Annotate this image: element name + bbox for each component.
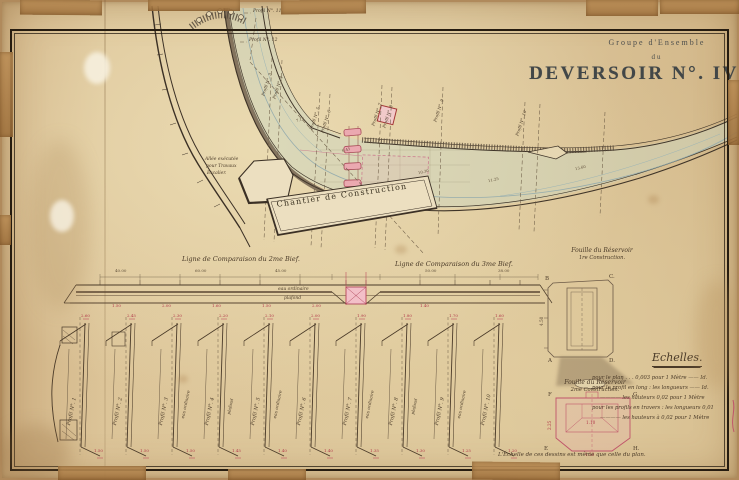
tape-patch — [586, 0, 658, 16]
profil-top-dim: 2.45 — [127, 314, 136, 319]
water-level-label: eau ordinaire — [278, 287, 309, 292]
title-line-2: du — [572, 53, 739, 61]
chainage-dim: 60.00 — [195, 269, 206, 274]
scale-line-2: pour le profil en long : les longueurs —… — [592, 384, 738, 393]
chainage-dim: 38.00 — [498, 269, 509, 274]
scale-line-4: pour les profils en travers : les longue… — [592, 404, 738, 413]
tape-patch — [0, 52, 13, 137]
depth-dim: 1.50 — [112, 304, 121, 309]
tape-patch — [660, 0, 739, 14]
profil-top-dim: 2.20 — [219, 314, 228, 319]
tape-patch — [20, 0, 102, 15]
depth-dim: 2.00 — [312, 304, 321, 309]
chainage-dim: 50.00 — [425, 269, 436, 274]
title-line-1: Groupe d'Ensemble — [572, 38, 739, 47]
depth-dim: 1.50 — [262, 304, 271, 309]
profil-bottom-dim: 1.50 — [186, 449, 195, 454]
profil-top-dim: 1.70 — [449, 314, 458, 319]
fouille-reservoir-1 — [544, 280, 634, 389]
corner-letter-A: A — [548, 358, 552, 364]
chainage-dim: 40.00 — [115, 269, 126, 274]
fouille2-inner-dim: 1.10 — [586, 421, 595, 426]
fouille1-title: Fouille du Réservoir — [550, 248, 654, 255]
corner-letter-D: D. — [609, 358, 615, 364]
bottom-scale-note: L'Échelle de ces dessins est même que ce… — [498, 452, 646, 458]
long-profile-left-title: Ligne de Comparaison du 2me Bief. — [182, 256, 300, 263]
profil-bottom-dim: 1.30 — [416, 449, 425, 454]
tape-patch — [148, 0, 240, 11]
marker-profil-12: Profil N°. 12 — [249, 38, 278, 43]
allee-note-line1: Allée exécutée — [205, 157, 238, 162]
tape-patch — [0, 215, 11, 245]
profil-top-dim: 1.80 — [403, 314, 412, 319]
profil-bottom-dim: 1.35 — [370, 449, 379, 454]
profil-top-dim: 1.90 — [357, 314, 366, 319]
profil-bottom-dim: 1.40 — [278, 449, 287, 454]
profil-top-dim: 2.00 — [311, 314, 320, 319]
scale-line-3: ———— les hauteurs 0,02 pour 1 Mètre — [600, 394, 739, 403]
tape-patch — [58, 466, 146, 480]
profil-top-dim: 2.30 — [173, 314, 182, 319]
profil-top-dim: 1.60 — [495, 314, 504, 319]
depth-dim: 2.00 — [162, 304, 171, 309]
corner-letter-C: C. — [609, 274, 615, 280]
depth-dim: 1.60 — [212, 304, 221, 309]
profil-top-dim: 2.60 — [81, 314, 90, 319]
scales-heading: Echelles. — [652, 352, 702, 367]
profil-bottom-dim: 1.25 — [462, 449, 471, 454]
scale-line-5: ———— les hauteurs à 0,02 pour 1 Mètre — [600, 414, 739, 423]
fouille1-subtitle: 1re Construction. — [550, 256, 654, 262]
tape-patch — [728, 80, 739, 145]
marker-profil-11: Profil N°. 11 — [253, 9, 282, 14]
chainage-dim: 45.00 — [275, 269, 286, 274]
cross-sections — [52, 317, 517, 458]
tape-patch — [228, 469, 306, 480]
allee-note-line3: Escalier. — [207, 171, 226, 176]
corner-letter-B: B — [545, 276, 549, 282]
fouille2-height-dim: 2.25 — [548, 421, 553, 430]
canal — [224, 6, 737, 211]
profil-bottom-dim: 1.50 — [140, 449, 149, 454]
profil-bottom-dim: 1.40 — [324, 449, 333, 454]
fouille1-dim: 4.50 — [540, 317, 545, 326]
profil-bottom-dim: 1.45 — [232, 449, 241, 454]
depth-dim: 1.40 — [420, 304, 429, 309]
profil-bottom-dim: 1.20 — [508, 449, 517, 454]
canal-bed-label: plafond — [284, 296, 301, 301]
drawing-sheet: Groupe d'Ensemble du DEVERSOIR N°. IV Ch… — [0, 0, 739, 480]
title-line-3: DEVERSOIR N°. IV — [528, 63, 739, 85]
tape-patch — [472, 462, 560, 480]
profil-top-dim: 2.10 — [265, 314, 274, 319]
long-profile-right-title: Ligne de Comparaison du 3me Bief. — [395, 261, 513, 268]
allee-note-line2: pour Travaux — [206, 164, 237, 169]
tape-patch — [281, 0, 366, 14]
corner-letter-F: F — [548, 392, 552, 398]
scale-line-1: pour le plan . . . 0,003 pour 1 Mètre ——… — [592, 374, 738, 383]
profil-bottom-dim: 1.50 — [94, 449, 103, 454]
